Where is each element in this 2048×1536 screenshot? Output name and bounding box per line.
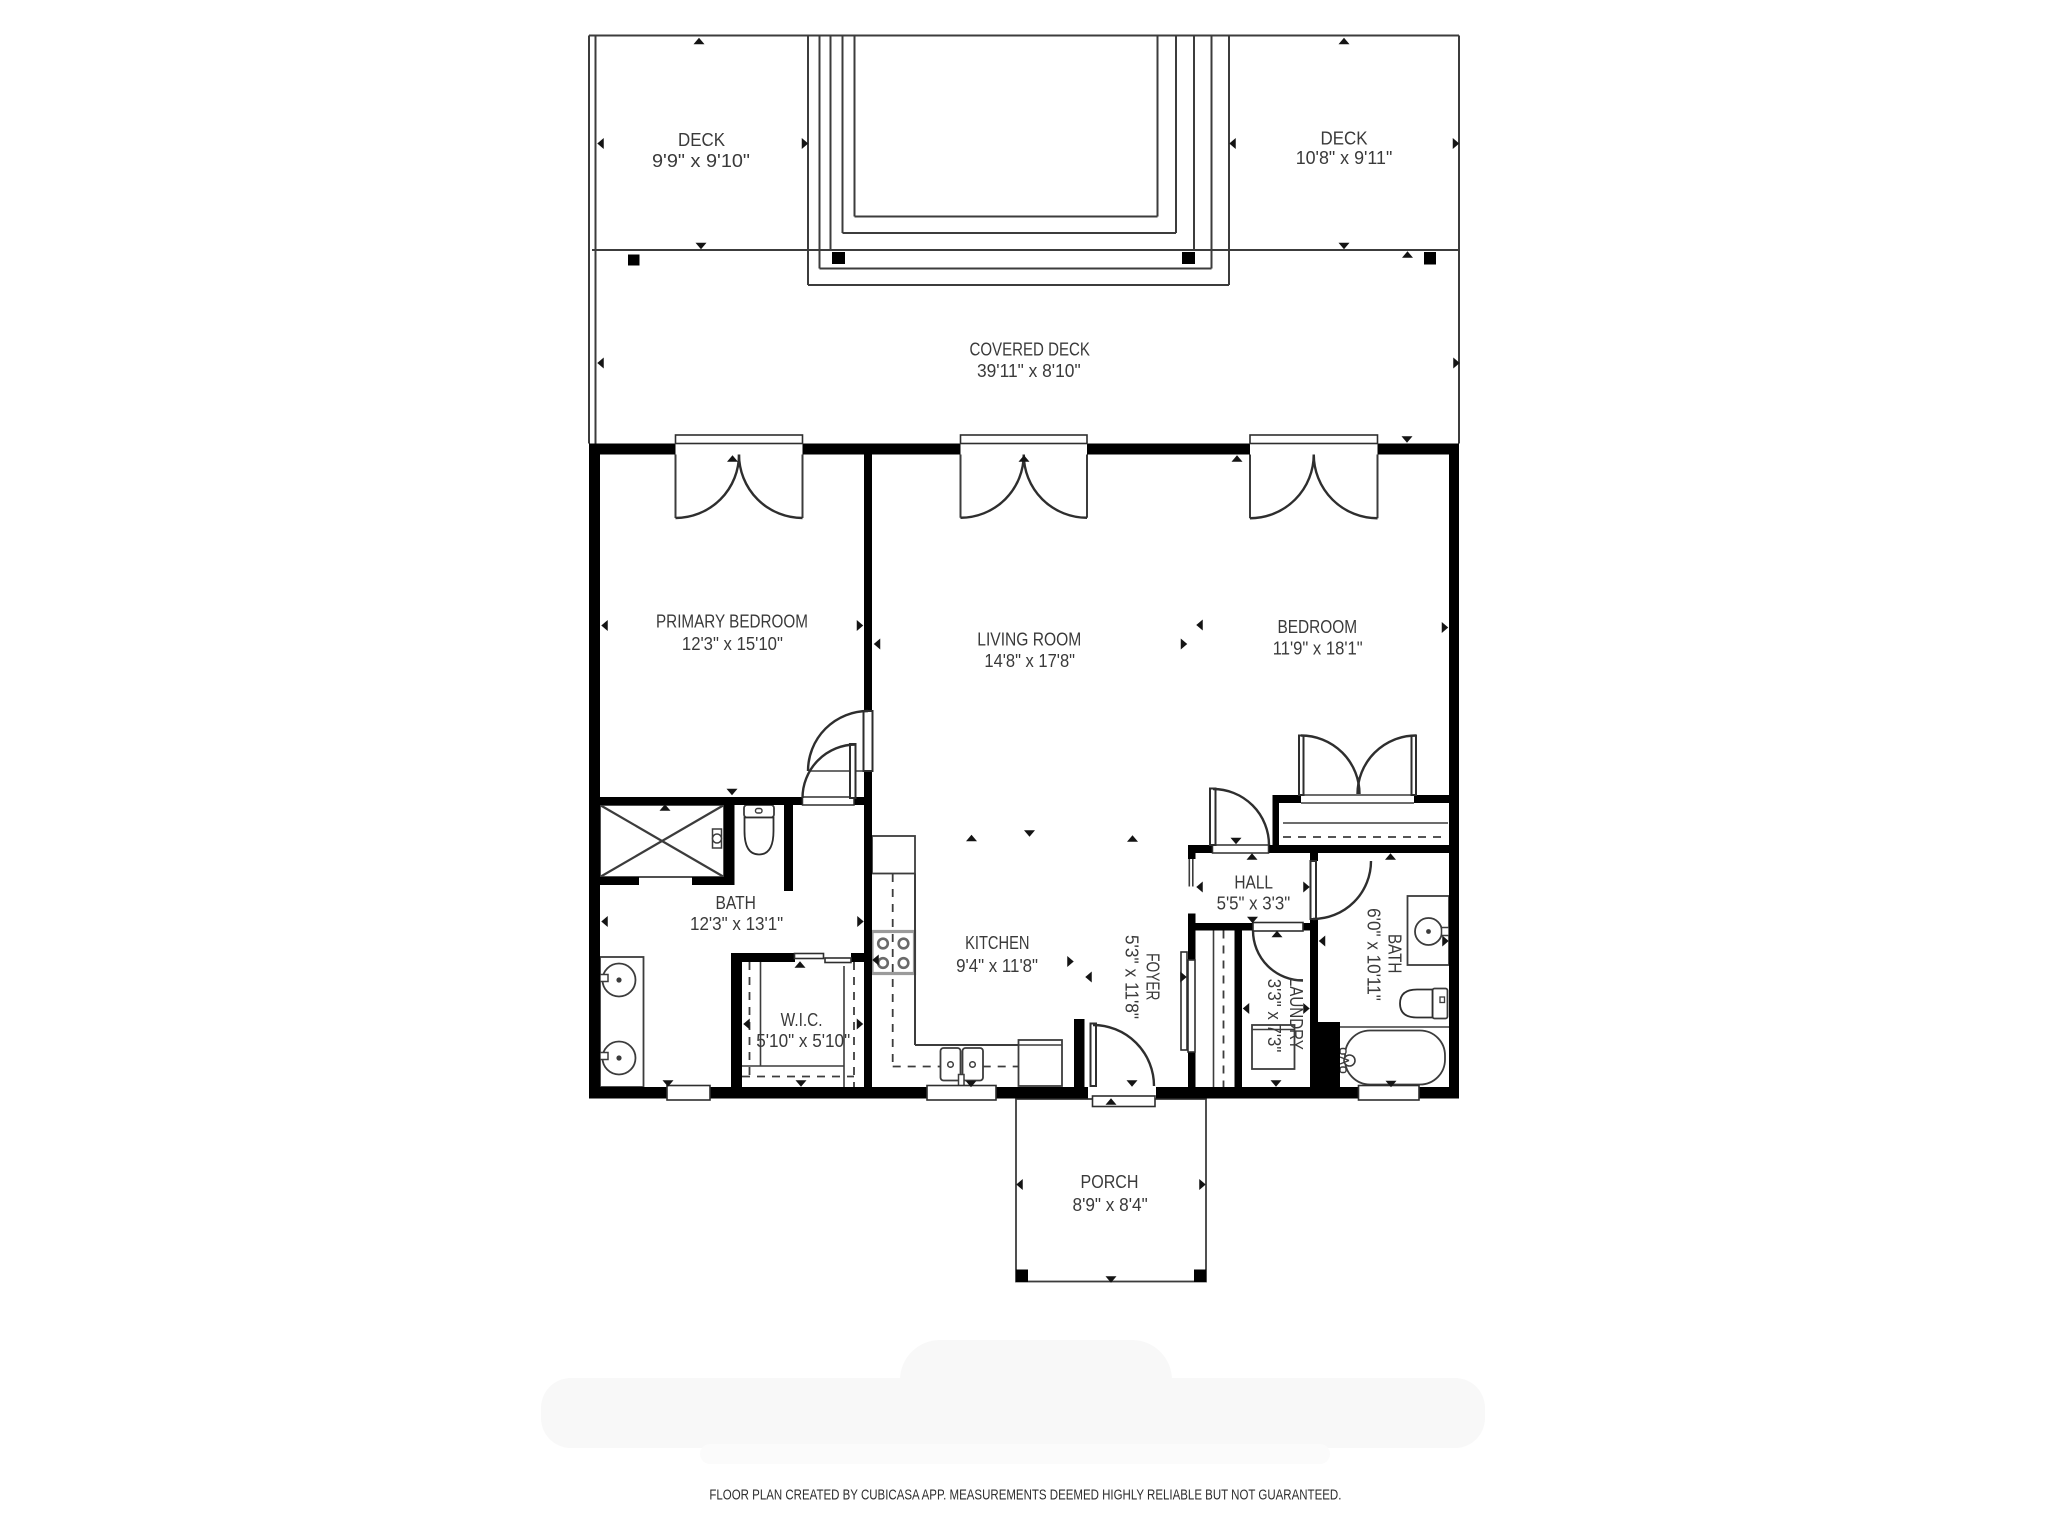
svg-text:KITCHEN: KITCHEN <box>965 933 1029 953</box>
svg-text:FOYER: FOYER <box>1143 953 1163 1000</box>
svg-text:LIVING ROOM: LIVING ROOM <box>977 630 1081 650</box>
svg-text:8'9" x 8'4": 8'9" x 8'4" <box>1073 1195 1148 1215</box>
svg-text:LAUNDRY: LAUNDRY <box>1286 978 1306 1050</box>
svg-text:5'5" x 3'3": 5'5" x 3'3" <box>1217 894 1291 914</box>
svg-text:11'9" x 18'1": 11'9" x 18'1" <box>1273 639 1363 659</box>
svg-text:14'8" x 17'8": 14'8" x 17'8" <box>984 651 1075 671</box>
svg-text:COVERED DECK: COVERED DECK <box>969 340 1090 360</box>
svg-text:6'0" x 10'11": 6'0" x 10'11" <box>1364 908 1384 1001</box>
svg-text:9'4" x 11'8": 9'4" x 11'8" <box>956 956 1038 976</box>
svg-text:W.I.C.: W.I.C. <box>781 1010 823 1030</box>
svg-text:12'3" x 13'1": 12'3" x 13'1" <box>690 914 783 934</box>
svg-text:HALL: HALL <box>1234 872 1273 892</box>
svg-text:BEDROOM: BEDROOM <box>1277 617 1357 637</box>
svg-text:3'3" x 7'3": 3'3" x 7'3" <box>1264 979 1284 1053</box>
svg-text:PORCH: PORCH <box>1081 1172 1139 1192</box>
svg-text:DECK: DECK <box>1321 129 1368 149</box>
svg-text:BATH: BATH <box>716 893 756 913</box>
svg-text:10'8" x 9'11": 10'8" x 9'11" <box>1296 148 1393 168</box>
svg-text:DECK: DECK <box>678 130 725 150</box>
svg-text:BATH: BATH <box>1385 934 1405 973</box>
svg-text:5'10" x 5'10": 5'10" x 5'10" <box>756 1031 850 1051</box>
svg-text:39'11" x 8'10": 39'11" x 8'10" <box>977 361 1081 381</box>
svg-text:12'3" x 15'10": 12'3" x 15'10" <box>682 634 783 654</box>
svg-text:5'3" x 11'8": 5'3" x 11'8" <box>1121 935 1141 1019</box>
svg-text:PRIMARY BEDROOM: PRIMARY BEDROOM <box>656 612 808 632</box>
svg-text:9'9" x 9'10": 9'9" x 9'10" <box>652 151 750 171</box>
svg-text:FLOOR PLAN CREATED BY CUBICASA: FLOOR PLAN CREATED BY CUBICASA APP. MEAS… <box>709 1487 1341 1504</box>
